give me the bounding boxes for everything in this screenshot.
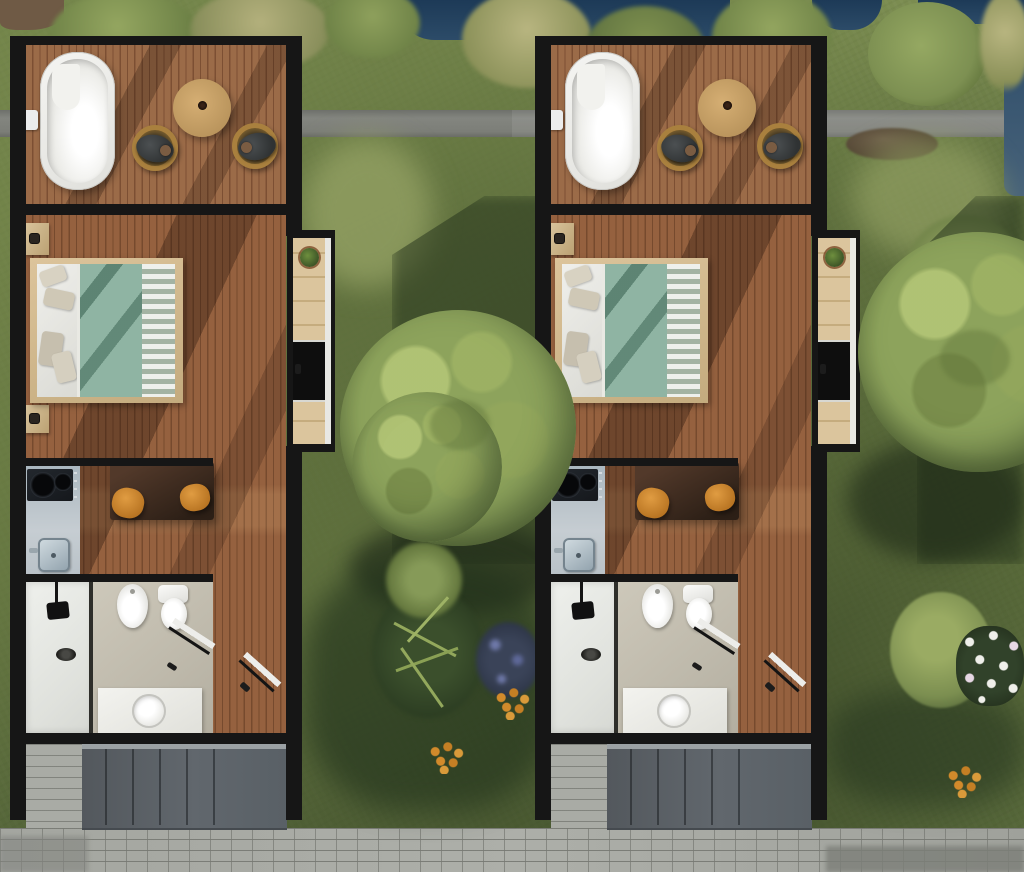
wall-left bbox=[10, 36, 26, 820]
paver-strip bbox=[26, 744, 82, 828]
duvet bbox=[605, 264, 667, 397]
orange-flower-cluster bbox=[428, 742, 464, 774]
tree-dark-spot bbox=[940, 330, 1010, 386]
purple-flower-patch bbox=[476, 622, 540, 698]
potted-plant bbox=[300, 248, 319, 267]
entry-door-handle bbox=[295, 364, 301, 374]
nightstand-decor bbox=[30, 234, 39, 243]
sink-drain bbox=[51, 553, 56, 558]
palm-bush bbox=[372, 548, 484, 738]
nightstand-decor bbox=[30, 414, 39, 423]
entry-door-handle bbox=[820, 364, 826, 374]
seated-person-head bbox=[160, 145, 171, 156]
kitchen-sink bbox=[563, 538, 595, 572]
coffee-cup bbox=[723, 101, 732, 110]
shower-partition bbox=[614, 582, 618, 733]
orange-flower-cluster bbox=[946, 766, 982, 798]
wall-right-porch bbox=[811, 733, 827, 820]
sink-faucet bbox=[29, 548, 38, 553]
potted-plant bbox=[825, 248, 844, 267]
cabin-unit-2 bbox=[535, 36, 865, 836]
duvet-fold bbox=[77, 264, 80, 397]
tree-dark-spot bbox=[430, 400, 490, 450]
palm-bush-crown bbox=[386, 542, 462, 618]
wall-top bbox=[10, 36, 302, 45]
duvet bbox=[80, 264, 142, 397]
seated-person-head bbox=[685, 145, 696, 156]
bathtub-ledge bbox=[577, 64, 605, 110]
wall-right-lower bbox=[811, 446, 827, 749]
wall-divider-deck bbox=[10, 204, 302, 215]
paver-dark-corner bbox=[0, 836, 88, 872]
porch-panels bbox=[105, 749, 217, 825]
cooktop-knobs bbox=[74, 472, 77, 498]
cabin-unit-1 bbox=[10, 36, 340, 836]
shower-head bbox=[46, 601, 70, 620]
wall-right-lower bbox=[286, 446, 302, 749]
cooktop bbox=[27, 469, 73, 501]
outdoor-dining-table bbox=[698, 79, 756, 137]
wall-bottom bbox=[10, 733, 302, 744]
shower-partition bbox=[89, 582, 93, 733]
wall-bathroom bbox=[10, 574, 213, 582]
paver-dark-section bbox=[826, 846, 1024, 872]
wall-kitchen bbox=[10, 458, 213, 466]
floor-drain bbox=[581, 648, 601, 661]
cooktop-knobs bbox=[599, 472, 602, 498]
wall-top bbox=[535, 36, 827, 45]
porch-panels bbox=[630, 749, 742, 825]
entry-porch bbox=[287, 230, 335, 452]
striped-runner bbox=[667, 264, 700, 397]
striped-runner bbox=[142, 264, 175, 397]
entry-porch-sill bbox=[850, 238, 856, 444]
bathtub-basin bbox=[572, 59, 633, 183]
coffee-cup bbox=[198, 101, 207, 110]
seated-person-head bbox=[241, 142, 252, 153]
nightstand-decor bbox=[555, 234, 564, 243]
outdoor-dining-table bbox=[173, 79, 231, 137]
bathtub bbox=[565, 52, 640, 190]
floor-drain bbox=[56, 648, 76, 661]
burner bbox=[579, 473, 597, 491]
kitchen-sink bbox=[38, 538, 70, 572]
wash-basin bbox=[657, 694, 691, 728]
bidet-tap bbox=[655, 589, 660, 594]
wall-bottom bbox=[535, 733, 827, 744]
shower-head bbox=[571, 601, 595, 620]
wall-bathroom bbox=[535, 574, 738, 582]
entry-porch bbox=[812, 230, 860, 452]
orange-flower-cluster bbox=[494, 688, 530, 720]
burner bbox=[30, 472, 56, 498]
double-bed bbox=[555, 258, 708, 403]
sink-drain bbox=[576, 553, 581, 558]
duvet-fold bbox=[602, 264, 605, 397]
wash-basin bbox=[132, 694, 166, 728]
bathtub-ledge bbox=[52, 64, 80, 110]
bathtub bbox=[40, 52, 115, 190]
wall-divider-deck bbox=[535, 204, 827, 215]
seated-person-head bbox=[766, 142, 777, 153]
wall-right-porch bbox=[286, 733, 302, 820]
burner bbox=[54, 473, 72, 491]
entry-porch-sill bbox=[325, 238, 331, 444]
bidet-tap bbox=[130, 589, 135, 594]
paver-strip bbox=[551, 744, 607, 828]
site-plan bbox=[0, 0, 1024, 872]
bathtub-basin bbox=[47, 59, 108, 183]
sink-faucet bbox=[554, 548, 563, 553]
double-bed bbox=[30, 258, 183, 403]
white-daisy-patch bbox=[956, 626, 1024, 706]
round-bush bbox=[868, 2, 986, 106]
